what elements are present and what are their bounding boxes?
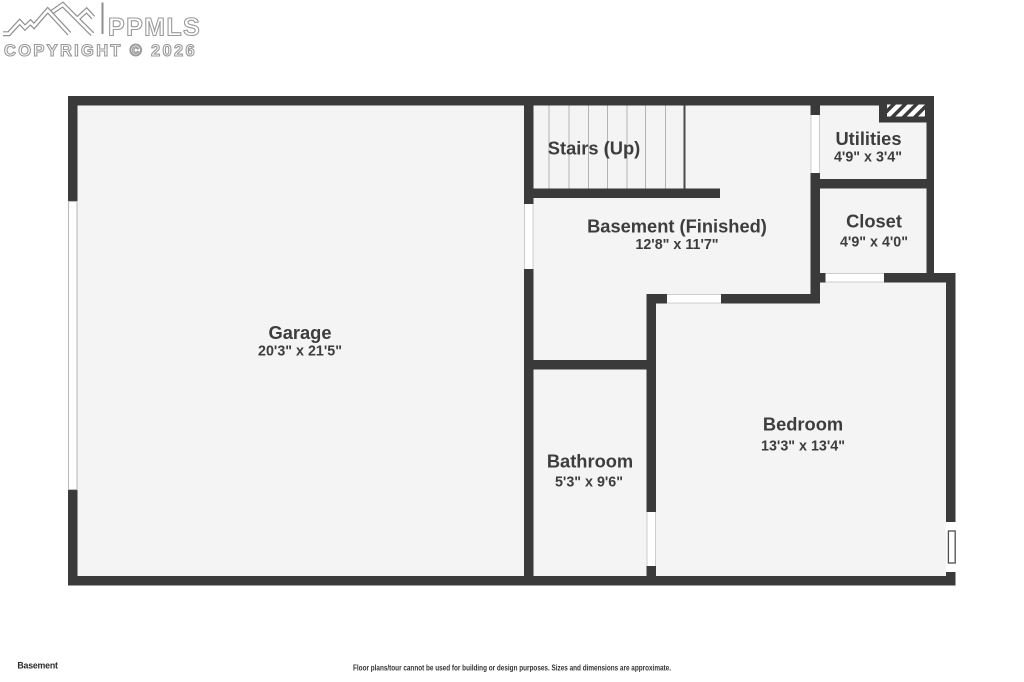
svg-text:4'9" x 3'4": 4'9" x 3'4" xyxy=(834,149,902,165)
svg-text:Basement (Finished): Basement (Finished) xyxy=(587,216,767,237)
svg-text:20'3" x 21'5": 20'3" x 21'5" xyxy=(258,344,342,360)
svg-text:Bedroom: Bedroom xyxy=(763,414,843,435)
svg-text:13'3" x 13'4": 13'3" x 13'4" xyxy=(761,438,845,454)
svg-text:PPMLS: PPMLS xyxy=(108,14,201,42)
svg-text:Stairs (Up): Stairs (Up) xyxy=(548,138,640,159)
svg-text:4'9" x 4'0": 4'9" x 4'0" xyxy=(840,234,908,250)
svg-text:Garage: Garage xyxy=(268,322,331,343)
svg-text:COPYRIGHT © 2026: COPYRIGHT © 2026 xyxy=(4,42,197,60)
svg-text:Closet: Closet xyxy=(846,211,902,232)
svg-text:5'3" x 9'6": 5'3" x 9'6" xyxy=(555,474,623,490)
svg-text:Utilities: Utilities xyxy=(835,128,901,149)
svg-text:Basement: Basement xyxy=(17,661,58,671)
svg-text:Floor plans/tour cannot be use: Floor plans/tour cannot be used for buil… xyxy=(353,664,671,673)
svg-text:Bathroom: Bathroom xyxy=(547,451,633,472)
svg-text:12'8" x 11'7": 12'8" x 11'7" xyxy=(635,237,718,253)
